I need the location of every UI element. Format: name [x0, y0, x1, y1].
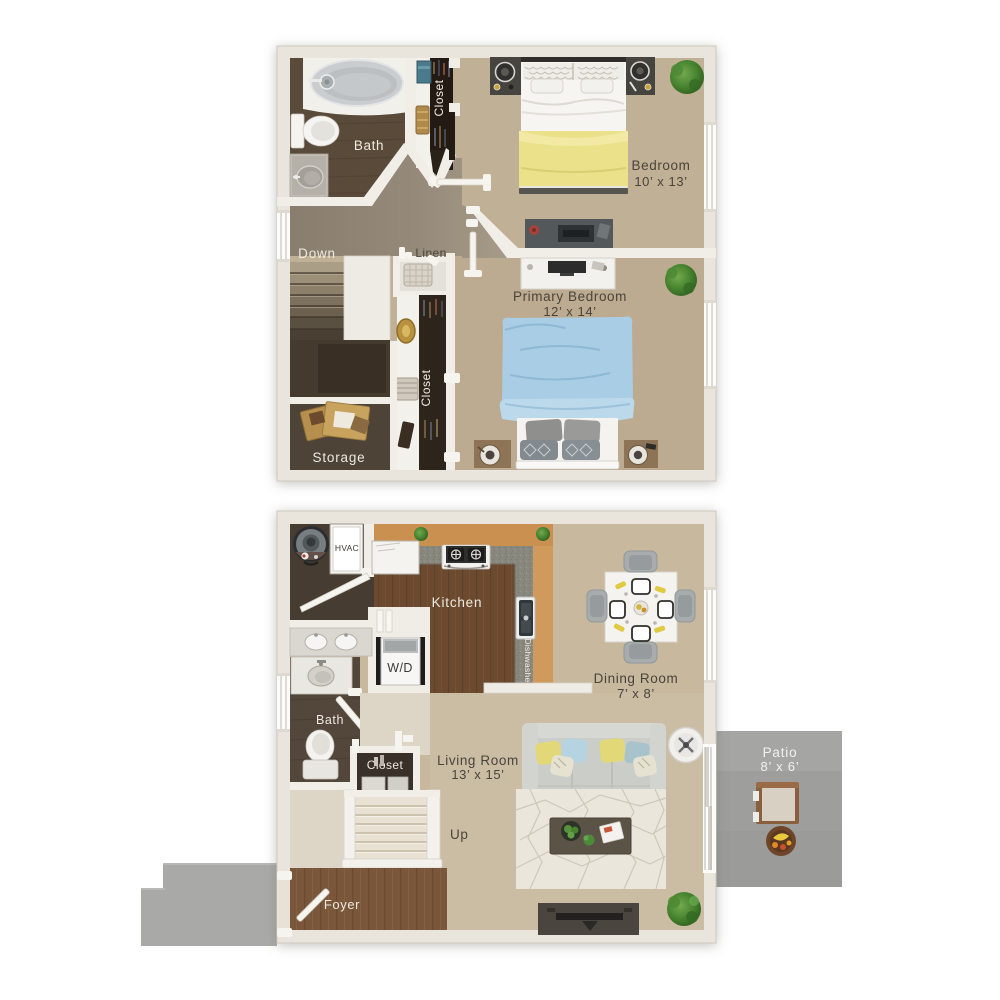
svg-text:Living Room: Living Room: [437, 753, 519, 768]
svg-text:Closet: Closet: [367, 758, 404, 772]
svg-text:Closet: Closet: [419, 369, 433, 406]
svg-text:Down: Down: [298, 246, 336, 261]
svg-text:Dining Room: Dining Room: [594, 671, 679, 686]
svg-text:7’ x 8’: 7’ x 8’: [617, 686, 655, 701]
svg-text:8’ x 6’: 8’ x 6’: [760, 759, 799, 774]
svg-text:Primary Bedroom: Primary Bedroom: [513, 289, 627, 304]
svg-text:Bedroom: Bedroom: [632, 158, 691, 173]
svg-text:10’ x 13’: 10’ x 13’: [634, 174, 687, 189]
svg-text:HVAC: HVAC: [335, 543, 359, 553]
svg-text:Kitchen: Kitchen: [432, 595, 483, 610]
svg-text:Closet: Closet: [432, 79, 446, 116]
svg-text:Storage: Storage: [313, 450, 366, 465]
svg-text:Bath: Bath: [316, 713, 344, 727]
svg-text:12’ x 14’: 12’ x 14’: [543, 304, 596, 319]
svg-text:Bath: Bath: [354, 138, 384, 153]
svg-text:Patio: Patio: [763, 745, 798, 760]
svg-text:W/D: W/D: [387, 661, 413, 675]
svg-text:13’ x 15’: 13’ x 15’: [451, 767, 504, 782]
svg-text:Up: Up: [450, 827, 468, 842]
svg-text:Dishwasher: Dishwasher: [523, 638, 533, 685]
svg-text:Foyer: Foyer: [324, 897, 360, 912]
